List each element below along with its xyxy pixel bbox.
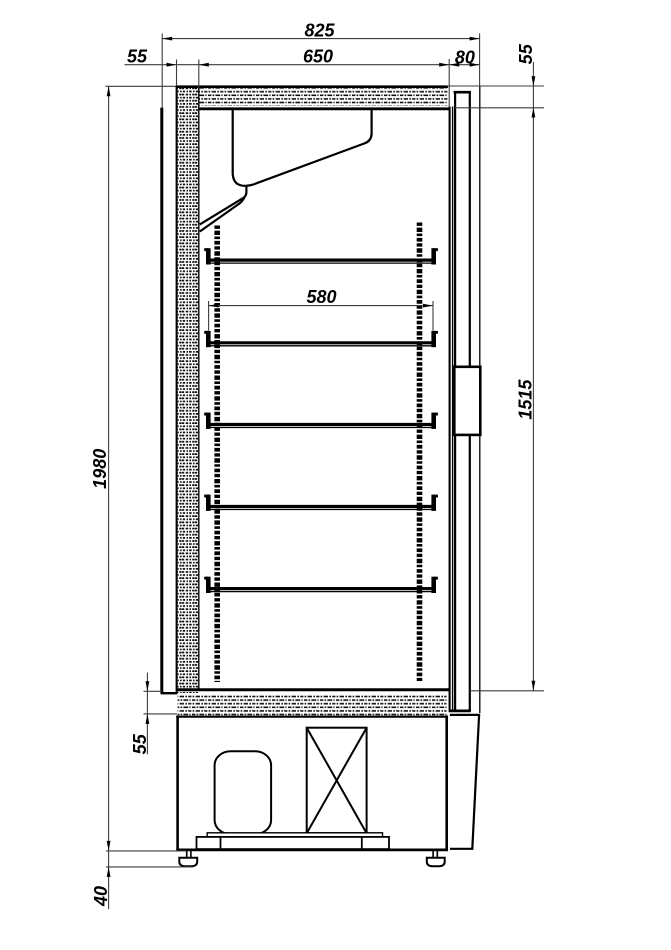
svg-text:1980: 1980: [90, 449, 110, 489]
svg-text:580: 580: [306, 287, 336, 307]
svg-text:825: 825: [304, 20, 335, 40]
svg-text:40: 40: [91, 886, 111, 907]
svg-text:1515: 1515: [516, 379, 536, 420]
svg-text:55: 55: [516, 43, 536, 64]
svg-text:80: 80: [455, 47, 475, 67]
svg-text:55: 55: [130, 733, 150, 754]
svg-text:650: 650: [303, 47, 333, 67]
svg-text:55: 55: [127, 47, 148, 67]
